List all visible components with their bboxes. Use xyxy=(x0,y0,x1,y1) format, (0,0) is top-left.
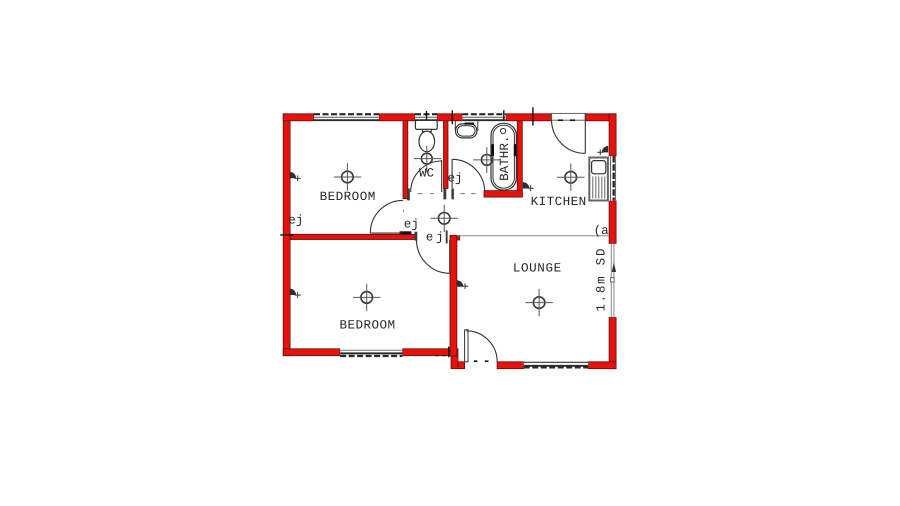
svg-text:ej: ej xyxy=(426,231,446,245)
svg-text:(a: (a xyxy=(594,224,610,238)
svg-text:BEDROOM: BEDROOM xyxy=(320,190,376,204)
svg-text:ej: ej xyxy=(404,217,419,231)
svg-text:1.8m SD: 1.8m SD xyxy=(595,247,609,312)
svg-text:LOUNGE: LOUNGE xyxy=(513,262,562,276)
svg-text:KITCHEN: KITCHEN xyxy=(531,195,587,209)
svg-text:ej: ej xyxy=(288,214,303,228)
svg-text:ej: ej xyxy=(448,172,463,186)
svg-text:BEDROOM: BEDROOM xyxy=(339,318,395,332)
svg-text:WC: WC xyxy=(419,167,435,181)
svg-text:BATHR.: BATHR. xyxy=(498,136,512,181)
